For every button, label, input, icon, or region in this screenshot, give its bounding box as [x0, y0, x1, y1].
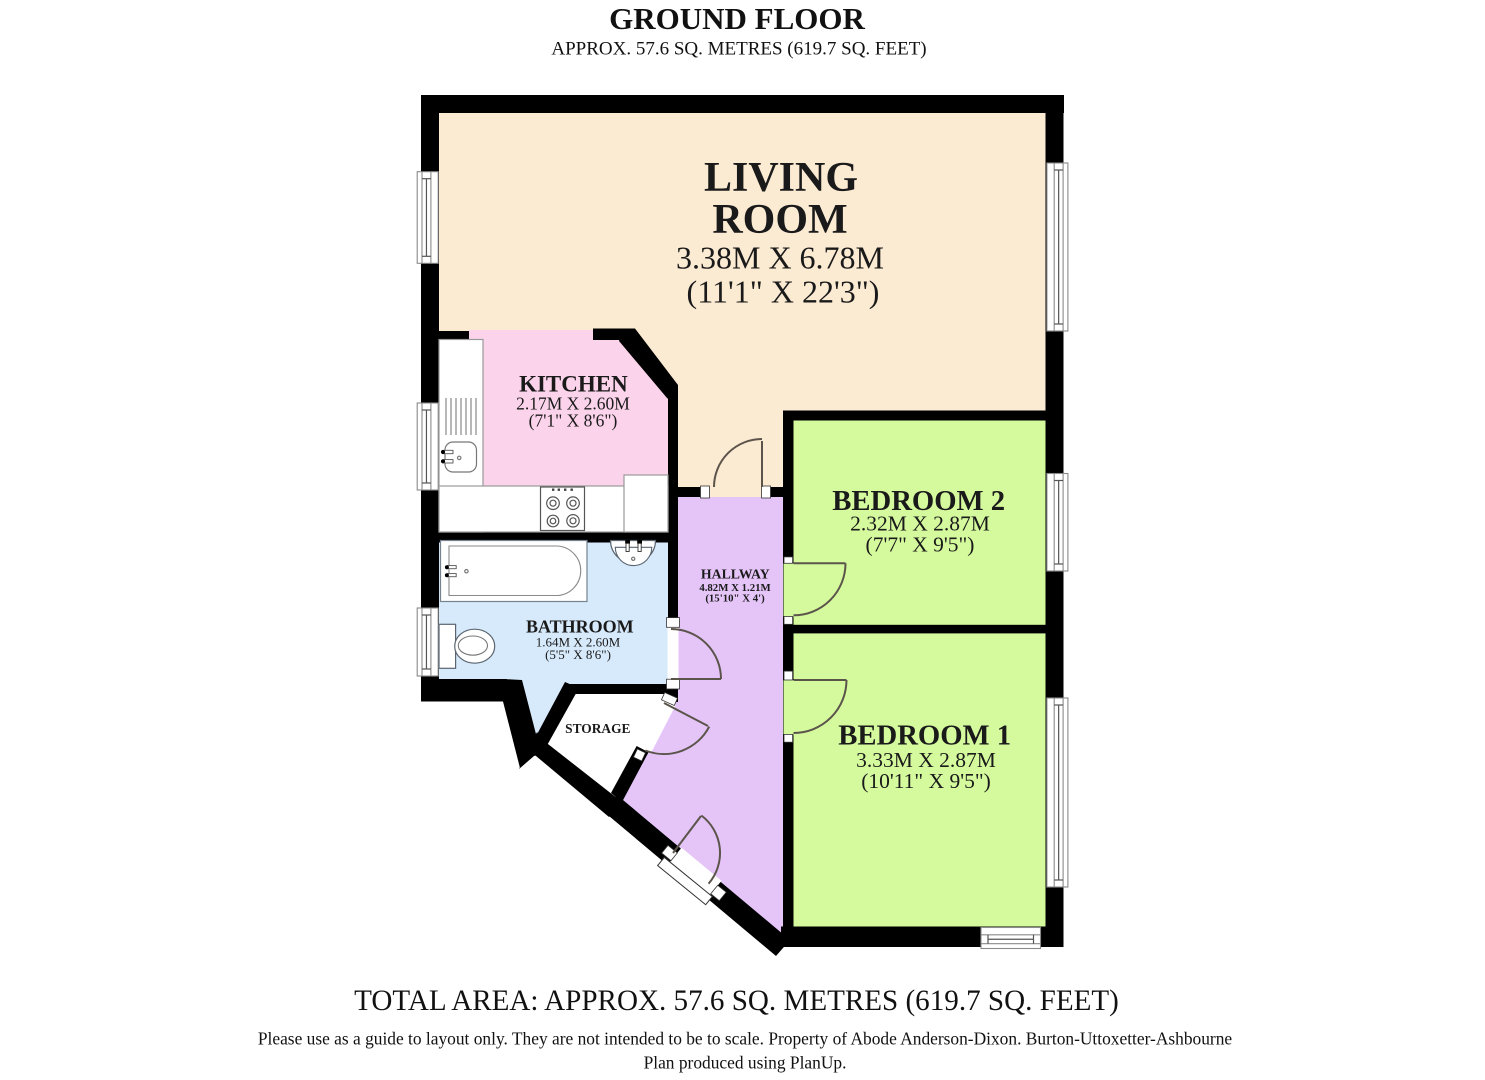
svg-text:(15'10" X 4'): (15'10" X 4') — [705, 593, 765, 605]
svg-text:HALLWAY: HALLWAY — [701, 567, 770, 582]
svg-text:(5'5" X 8'6"): (5'5" X 8'6") — [545, 647, 611, 662]
svg-text:BEDROOM 1: BEDROOM 1 — [838, 720, 1011, 752]
svg-text:TOTAL AREA: APPROX. 57.6 SQ. M: TOTAL AREA: APPROX. 57.6 SQ. METRES (619… — [354, 985, 1119, 1017]
svg-text:3.38M X 6.78M: 3.38M X 6.78M — [676, 240, 884, 276]
svg-text:(7'7" X 9'5"): (7'7" X 9'5") — [866, 533, 975, 557]
svg-text:GROUND FLOOR: GROUND FLOOR — [609, 1, 865, 36]
svg-text:(7'1" X 8'6"): (7'1" X 8'6") — [529, 411, 618, 431]
svg-text:(10'11" X 9'5"): (10'11" X 9'5") — [861, 769, 991, 793]
svg-text:STORAGE: STORAGE — [565, 721, 630, 736]
svg-text:LIVING: LIVING — [704, 155, 858, 201]
svg-text:Please use as a guide to layou: Please use as a guide to layout only. Th… — [258, 1029, 1233, 1049]
svg-text:ROOM: ROOM — [712, 197, 847, 243]
svg-text:APPROX. 57.6 SQ. METRES (619.7: APPROX. 57.6 SQ. METRES (619.7 SQ. FEET) — [551, 39, 926, 60]
svg-text:BATHROOM: BATHROOM — [526, 617, 634, 637]
svg-text:Plan produced using PlanUp.: Plan produced using PlanUp. — [644, 1053, 847, 1073]
svg-text:(11'1" X 22'3"): (11'1" X 22'3") — [687, 274, 880, 310]
